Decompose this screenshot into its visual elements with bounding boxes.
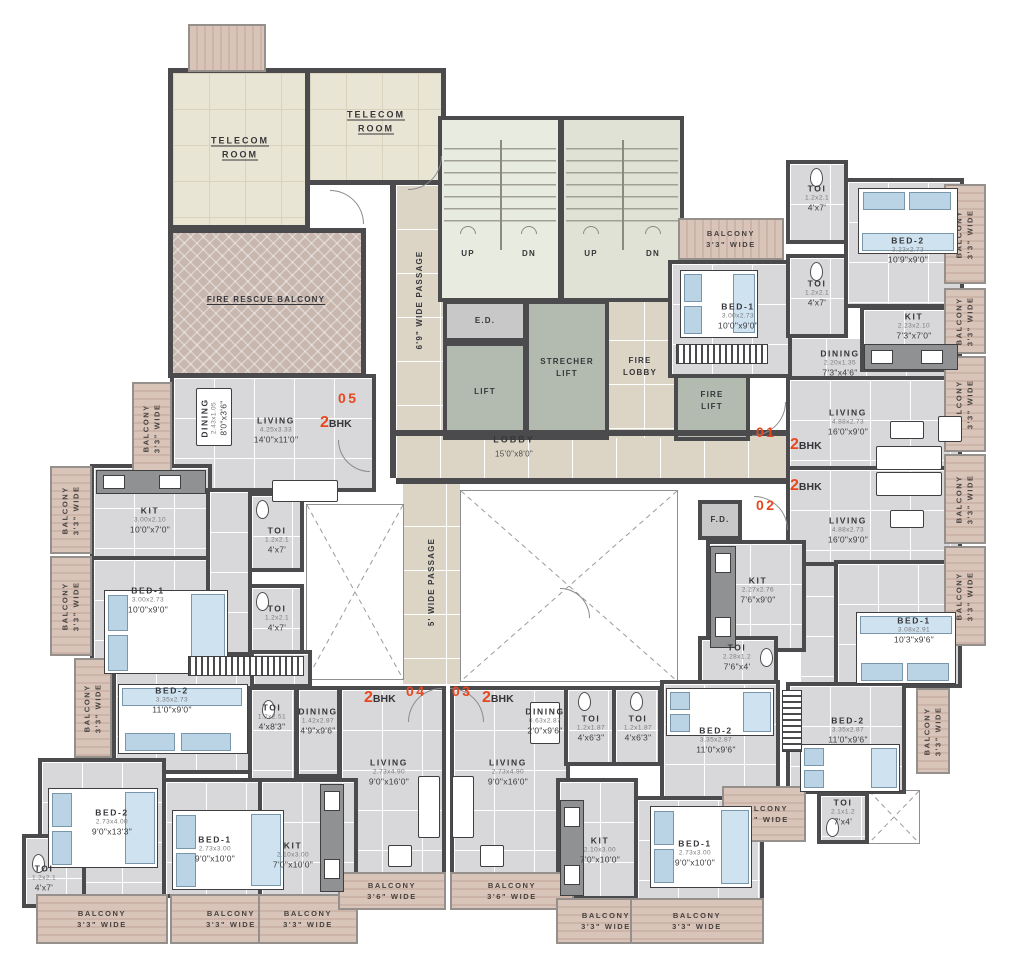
label-kitchen-05: KIT3.00x2.1010'0"x7'0": [130, 505, 170, 534]
label-fire-lift: FIRE LIFT: [692, 389, 732, 413]
armchair: [388, 845, 412, 867]
unit-number-03: 03: [452, 683, 473, 699]
balcony-label: BALCONY3'3" WIDE: [60, 485, 83, 535]
kitchen-counter: [710, 546, 736, 648]
label-dining-03: DINING0.63x2.872'0"x9'6": [525, 706, 564, 735]
coffee-table: [890, 510, 924, 528]
label-bed2-01: BED-23.23x2.7310'9"x9'0": [888, 235, 928, 264]
armchair: [480, 845, 504, 867]
unit-type-02: 2BHK: [790, 477, 822, 495]
sofa: [876, 446, 942, 470]
balcony-label: BALCONY3'3" WIDE: [60, 581, 83, 631]
balcony-label: BALCONY3'3" WIDE: [581, 910, 631, 933]
wall: [390, 185, 396, 478]
staircase-1: [438, 116, 562, 302]
label-bed2-03: BED-23.35x2.8711'0"x9'6": [696, 725, 736, 754]
label-kitchen-02: KIT2.27x2.767'6"x9'0": [740, 575, 775, 604]
label-bed2-04b: BED-22.73x4.009'0"x13'3": [92, 807, 132, 836]
unit-type-03: 2BHK: [482, 689, 514, 707]
toilet-wc: [760, 648, 773, 667]
label-toi-02: TOI2.28x1.27'6"x4': [723, 642, 751, 671]
unit-number-02: 02: [756, 497, 777, 513]
label-living-04: LIVING2.73x4.909'0"x16'0": [369, 757, 409, 786]
label-kitchen-01: KIT2.23x2.107'3"x7'0": [896, 311, 931, 340]
label-fire-lobby: FIRE LOBBY: [615, 355, 665, 379]
stair-divider: [500, 140, 502, 250]
label-toi-05a: TOI1.2x2.14'x7': [265, 525, 289, 554]
balcony-bottom-1: BALCONY3'3" WIDE: [36, 894, 168, 944]
toilet-wc: [630, 692, 643, 711]
label-bed1-03: BED-12.73x3.009'0"x10'0": [675, 838, 715, 867]
floor-plan: BALCONY3'3" WIDE BALCONY4'3" WIDE BALCON…: [0, 0, 1015, 957]
room-toi-04: [248, 686, 298, 782]
label-bed2-04a: BED-23.35x2.7311'0"x9'0": [152, 685, 192, 714]
balcony-label: BALCONY3'3" WIDE: [206, 908, 256, 931]
balcony-label: BALCONY3'3" WIDE: [141, 403, 164, 453]
label-lobby: LOBBY15'0"x8'0": [493, 434, 535, 461]
balcony-label: BALCONY3'3" WIDE: [954, 296, 977, 346]
label-dn-2: DN: [646, 248, 660, 260]
label-bed1-01: BED-13.00x2.7310'0"x9'0": [718, 301, 758, 330]
balcony-05-left: BALCONY3'3" WIDE: [132, 382, 172, 474]
label-telecom-2: TELECOM ROOM: [331, 109, 421, 136]
sofa: [876, 472, 942, 496]
balcony-label: BALCONY3'6" WIDE: [367, 880, 417, 903]
duct-shaft: [460, 490, 678, 682]
label-up-1: UP: [461, 248, 475, 260]
kitchen-counter: [96, 470, 206, 494]
label-fire-rescue-balcony: FIRE RESCUE BALCONY: [207, 294, 325, 306]
label-kitchen-03: KIT2.10x3.007'0"x10'0": [580, 835, 620, 864]
balcony-left-2: BALCONY3'3" WIDE: [50, 556, 92, 656]
label-passage-5: 5' WIDE PASSAGE: [426, 538, 438, 626]
wardrobe: [782, 690, 802, 752]
label-toi-04: TOI1.2x2.514'x8'3": [258, 702, 286, 731]
label-bed1-02: BED-13.08x2.9110'3"x9'6": [894, 615, 934, 644]
balcony-right-4: BALCONY3'3" WIDE: [944, 454, 986, 544]
label-bed2-02: BED-23.35x2.8711'0"x9'6": [828, 715, 868, 744]
label-living-02: LIVING4.88x2.7316'0"x9'0": [828, 515, 868, 544]
balcony-left-1: BALCONY3'3" WIDE: [50, 466, 92, 554]
label-living-01: LIVING4.88x2.7316'0"x9'0": [828, 407, 868, 436]
label-strecher-lift: STRECHER LIFT: [535, 356, 599, 380]
wardrobe: [676, 344, 768, 364]
label-dining-04: DINING1.42x2.874'9"x9'6": [298, 706, 337, 735]
label-lift: LIFT: [474, 386, 496, 398]
balcony-label: BALCONY3'3" WIDE: [954, 571, 977, 621]
toilet-wc: [256, 500, 269, 519]
balcony-label: BALCONY3'3" WIDE: [954, 474, 977, 524]
label-dining-05: DINING2.43x1.058'0"x3'6": [199, 398, 228, 437]
unit-number-04: 04: [406, 683, 427, 699]
wardrobe: [188, 656, 304, 676]
balcony-36-left: BALCONY3'6" WIDE: [338, 872, 446, 910]
balcony-bottom-5: BALCONY3'3" WIDE: [630, 898, 764, 944]
label-passage-69: 6'9" WIDE PASSAGE: [414, 251, 426, 350]
lobby-band: [396, 434, 790, 482]
balcony-top-stub: [188, 24, 266, 72]
armchair: [938, 416, 962, 442]
toilet-wc: [578, 692, 591, 711]
label-living-05: LIVING4.25x3.3314'0"x11'0": [254, 415, 299, 444]
sofa: [452, 776, 474, 838]
label-living-03: LIVING2.73x4.909'0"x16'0": [488, 757, 528, 786]
balcony-label: BALCONY3'3" WIDE: [672, 910, 722, 933]
wall: [396, 430, 790, 436]
balcony-label: BALCONY3'3" WIDE: [77, 908, 127, 931]
unit-number-01: 01: [756, 424, 777, 440]
bed: [800, 744, 900, 792]
unit-type-05: 2BHK: [320, 414, 352, 432]
balcony-label: BALCONY3'3" WIDE: [922, 706, 945, 756]
sofa: [418, 776, 440, 838]
label-toi-01b: TOI1.2x2.14'x7': [805, 278, 829, 307]
label-toi-02b: TOI2.1x1.27'x4': [831, 797, 855, 826]
unit-type-04: 2BHK: [364, 689, 396, 707]
label-toi-05b: TOI1.2x2.14'x7': [265, 603, 289, 632]
label-kitchen-04: KIT2.10x3.007'0"x10'0": [273, 840, 313, 869]
unit-number-05: 05: [338, 390, 359, 406]
kitchen-counter: [864, 344, 958, 370]
wall: [396, 478, 790, 484]
balcony-label: BALCONY3'3" WIDE: [706, 228, 756, 251]
sofa: [272, 480, 338, 502]
staircase-2: [560, 116, 684, 302]
door-arc: [330, 190, 364, 224]
label-up-2: UP: [584, 248, 598, 260]
label-bed1-04: BED-12.73x3.009'0"x10'0": [195, 834, 235, 863]
label-dn-1: DN: [522, 248, 536, 260]
duct-shaft: [868, 790, 920, 844]
balcony-unit01-top: BALCONY3'3" WIDE: [678, 218, 784, 260]
unit-type-01: 2BHK: [790, 436, 822, 454]
label-ed: E.D.: [475, 315, 495, 327]
coffee-table: [890, 421, 924, 439]
balcony-label: BALCONY3'3" WIDE: [283, 908, 333, 931]
kitchen-counter: [320, 784, 344, 892]
label-telecom-1: TELECOM ROOM: [195, 135, 285, 162]
balcony-label: BALCONY3'6" WIDE: [487, 880, 537, 903]
stair-divider: [622, 140, 624, 250]
label-fd: F.D.: [710, 514, 729, 526]
balcony-right-6: BALCONY3'3" WIDE: [916, 688, 950, 774]
label-toi-03b: TOI1.2x1.874'x6'3": [624, 713, 652, 742]
label-toi-04b: TOI1.2x2.14'x7': [32, 863, 56, 892]
label-toi-03a: TOI1.2x1.874'x6'3": [577, 713, 605, 742]
balcony-label: BALCONY3'3" WIDE: [82, 683, 105, 733]
label-dining-01: DINING2.20x1.357'3"x4'6": [820, 348, 859, 377]
label-toi-01a: TOI1.2x2.14'x7': [805, 183, 829, 212]
label-bed1-05: BED-13.00x2.7310'0"x9'0": [128, 585, 168, 614]
duct-shaft: [306, 504, 404, 680]
